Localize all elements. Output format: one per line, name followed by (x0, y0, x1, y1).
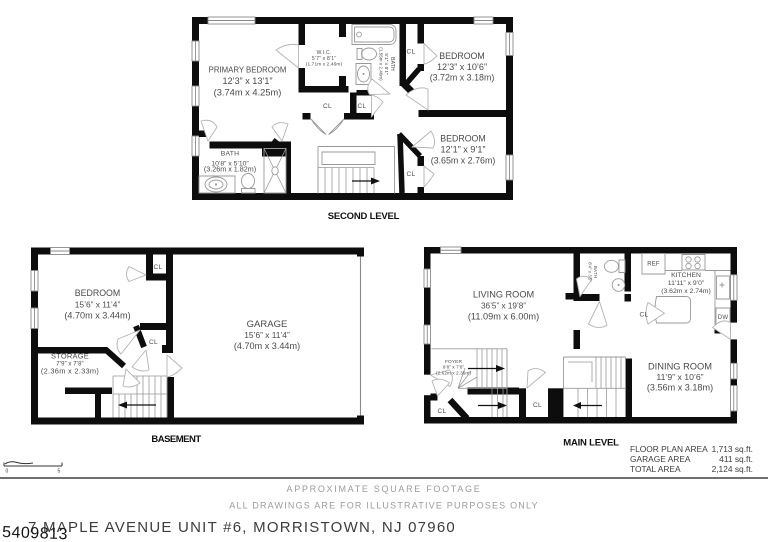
svg-text:FLOOR PLAN AREA: FLOOR PLAN AREA (630, 444, 708, 454)
svg-text:(2.36m x 2.33m): (2.36m x 2.33m) (41, 367, 99, 376)
svg-text:CL: CL (149, 339, 158, 346)
svg-text:GARAGE: GARAGE (247, 319, 288, 330)
svg-text:1,713 sq.ft.: 1,713 sq.ft. (712, 444, 753, 454)
svg-text:KITCHEN: KITCHEN (671, 272, 701, 279)
svg-text:7 MAPLE AVENUE UNIT #6, MORRIS: 7 MAPLE AVENUE UNIT #6, MORRISTOWN, NJ 0… (28, 519, 456, 536)
svg-text:12’1” x 9’1”: 12’1” x 9’1” (441, 145, 486, 155)
svg-text:MAIN LEVEL: MAIN LEVEL (563, 438, 619, 449)
svg-text:(4.70m x 3.44m): (4.70m x 3.44m) (64, 311, 130, 321)
svg-text:5: 5 (57, 469, 60, 475)
svg-text:DW: DW (718, 315, 729, 321)
svg-text:0: 0 (5, 469, 8, 475)
svg-text:411 sq.ft.: 411 sq.ft. (719, 454, 753, 464)
svg-text:11’11” x 9’0”: 11’11” x 9’0” (668, 280, 705, 287)
svg-text:(3.56m x 3.18m): (3.56m x 3.18m) (647, 383, 713, 393)
svg-text:15’6” x 11’4”: 15’6” x 11’4” (244, 330, 290, 340)
svg-text:(2.62m x 2.36m): (2.62m x 2.36m) (436, 371, 471, 376)
svg-text:PRIMARY BEDROOM: PRIMARY BEDROOM (209, 66, 287, 75)
svg-text:CL: CL (407, 171, 416, 178)
svg-text:15’6” x 11’4”: 15’6” x 11’4” (75, 300, 121, 310)
svg-text:LIVING ROOM: LIVING ROOM (473, 290, 534, 300)
svg-text:5’7” x 8’1”: 5’7” x 8’1” (312, 56, 336, 62)
svg-text:5’1” x 8’1”: 5’1” x 8’1” (384, 53, 389, 75)
svg-text:(3.74m x 4.25m): (3.74m x 4.25m) (214, 88, 282, 98)
svg-text:8’4” x 3’5”: 8’4” x 3’5” (588, 262, 593, 282)
svg-text:12’3” x 13’1”: 12’3” x 13’1” (222, 76, 272, 86)
svg-text:STORAGE: STORAGE (51, 351, 89, 360)
svg-text:(3.65m x 2.76m): (3.65m x 2.76m) (431, 156, 496, 166)
svg-text:(1.71m x 2.46m): (1.71m x 2.46m) (306, 62, 343, 68)
svg-text:(1.55m x 2.46m): (1.55m x 2.46m) (379, 47, 384, 81)
svg-text:CL: CL (533, 402, 542, 409)
svg-text:REF: REF (647, 262, 660, 268)
svg-text:BEDROOM: BEDROOM (75, 288, 120, 298)
svg-text:BEDROOM: BEDROOM (440, 134, 485, 144)
svg-text:8’8” x 7’8”: 8’8” x 7’8” (443, 365, 465, 370)
svg-text:CL: CL (438, 408, 447, 415)
svg-text:CL: CL (640, 312, 649, 319)
svg-text:CL: CL (358, 103, 367, 110)
svg-text:BATH: BATH (221, 150, 239, 157)
svg-text:APPROXIMATE SQUARE FOOTAGE: APPROXIMATE SQUARE FOOTAGE (287, 484, 482, 494)
svg-text:CL: CL (323, 103, 332, 110)
svg-text:GARAGE AREA: GARAGE AREA (630, 454, 691, 464)
svg-text:SECOND LEVEL: SECOND LEVEL (328, 211, 400, 222)
svg-text:5409813: 5409813 (2, 524, 68, 542)
svg-text:12’3” x 10’6”: 12’3” x 10’6” (437, 62, 487, 72)
svg-text:11’9” x 10’6”: 11’9” x 10’6” (656, 372, 703, 382)
svg-text:BASEMENT: BASEMENT (151, 434, 201, 445)
svg-text:CL: CL (154, 264, 163, 271)
svg-text:36’5” x 19’8”: 36’5” x 19’8” (481, 302, 526, 311)
svg-text:ALL DRAWINGS ARE FOR ILLUSTRAT: ALL DRAWINGS ARE FOR ILLUSTRATIVE PURPOS… (229, 501, 538, 511)
svg-text:(11.09m x 6.00m): (11.09m x 6.00m) (468, 312, 539, 322)
svg-text:(3.62m x 2.74m): (3.62m x 2.74m) (661, 288, 710, 295)
svg-text:BATH: BATH (593, 266, 598, 278)
svg-text:(3.26m x 1.82m): (3.26m x 1.82m) (204, 165, 256, 174)
svg-text:DINING ROOM: DINING ROOM (648, 362, 712, 372)
svg-text:2,124 sq.ft.: 2,124 sq.ft. (712, 464, 753, 474)
svg-text:(4.70m x 3.44m): (4.70m x 3.44m) (234, 341, 300, 351)
svg-text:CL: CL (407, 49, 416, 56)
svg-text:BEDROOM: BEDROOM (439, 51, 484, 61)
svg-text:TOTAL AREA: TOTAL AREA (630, 464, 681, 474)
svg-text:(3.72m x 3.18m): (3.72m x 3.18m) (430, 73, 495, 83)
